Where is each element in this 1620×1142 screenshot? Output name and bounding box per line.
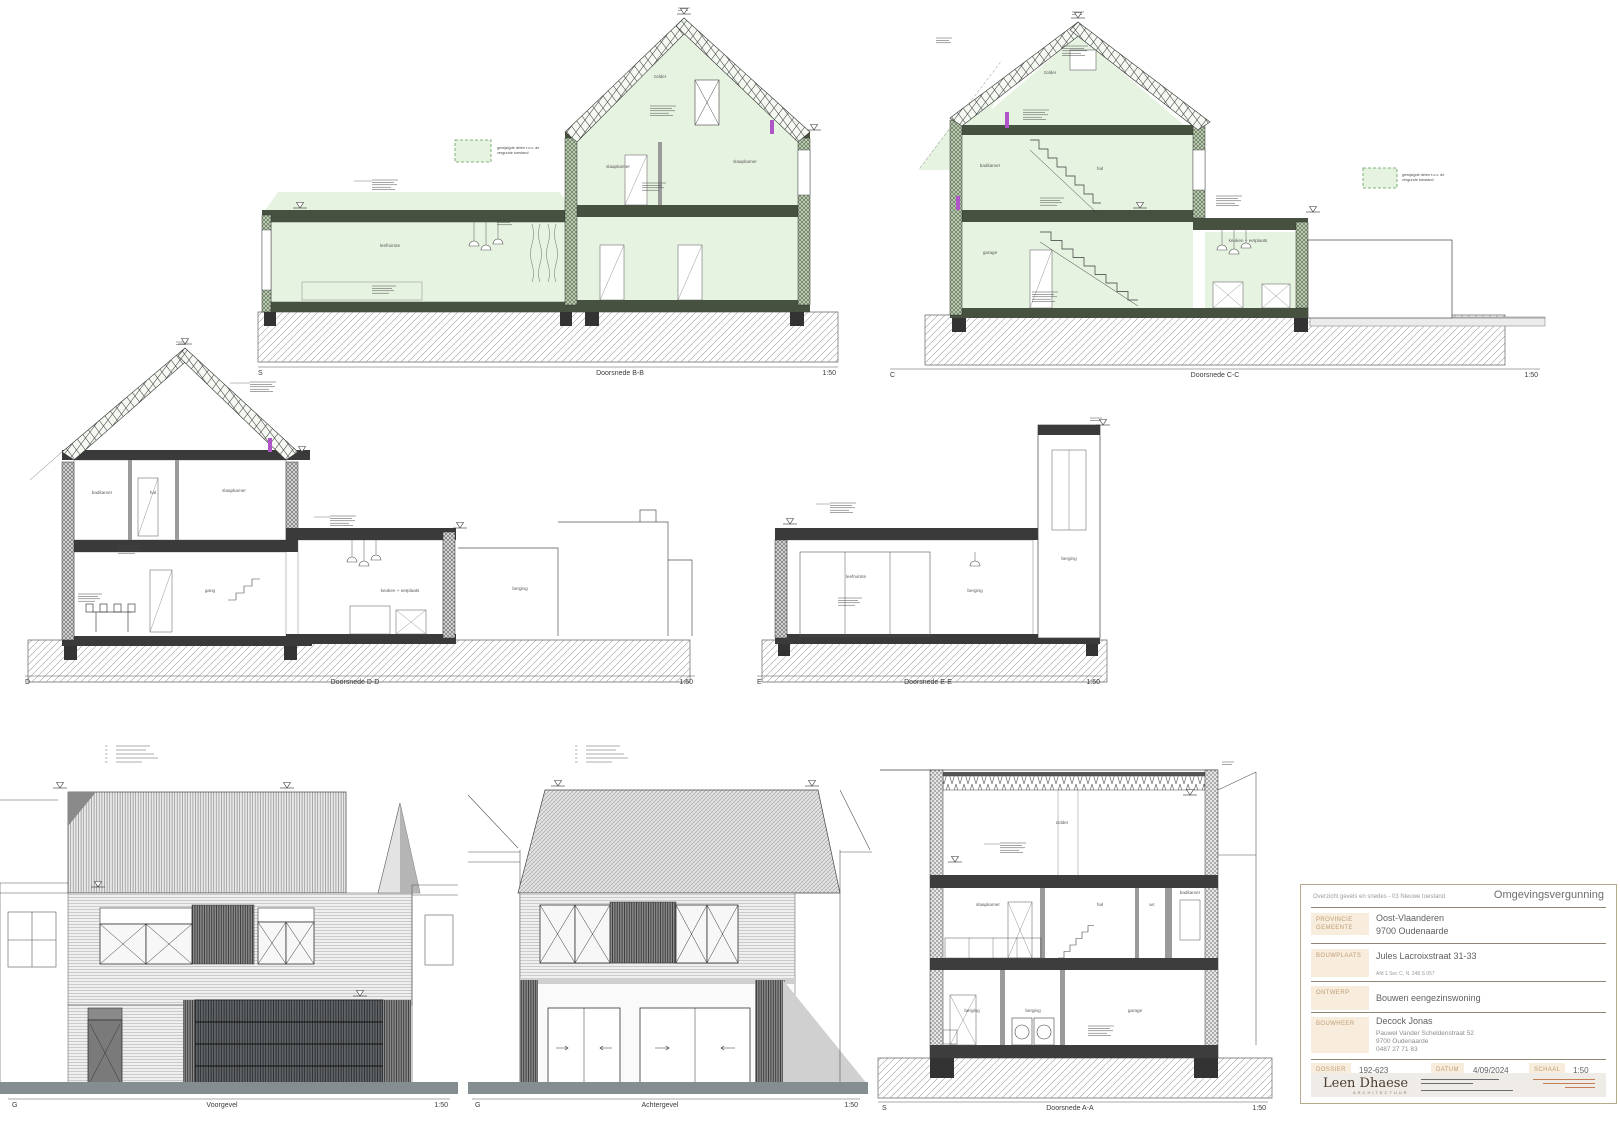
sliding-doors-2 (640, 1008, 750, 1085)
ground-hatch (762, 640, 1107, 682)
room-label: berging (512, 586, 528, 591)
legend-changed-parts: gewijzigde delen t.o.v. de vergunde toes… (1363, 168, 1444, 188)
legend-line2: vergunde toestand (1402, 178, 1433, 182)
field-label-provincie: PROVINCIE GEMEENTE (1311, 913, 1369, 935)
legend-line1: gewijzigde delen t.o.v. de (497, 146, 539, 150)
roof-truss-band (943, 776, 1205, 790)
section-marker: D (25, 679, 30, 686)
architect-logo: Leen Dhaese (1323, 1076, 1408, 1091)
drawing-scale: 1:50 (679, 679, 693, 686)
bouwheer-label: BOUWHEER (1316, 1021, 1355, 1027)
drawing-scale: 1:50 (822, 370, 836, 377)
room-label: keuken + eetplaats (1229, 238, 1268, 243)
neighbour-volumes (458, 510, 692, 636)
room-label: keuken + eetplaats (381, 588, 420, 593)
title-block: Overzicht gevels en snedes - 03 Nieuwe t… (1300, 884, 1617, 1104)
section-marker: C (890, 372, 895, 379)
material-legend (575, 746, 628, 762)
drawing-title: Doorsnede C-C (1191, 372, 1240, 379)
drawing-doorsnede-ee: leefruimte berging berging E Doorsnede E… (750, 415, 1120, 690)
room-label: slaapkamer (222, 488, 246, 493)
legend-swatch (455, 140, 491, 162)
drawing-scale: 1:50 (1086, 679, 1100, 686)
room-label: zolder (1044, 70, 1057, 75)
slat-band (610, 902, 676, 963)
drawing-voorgevel: G Voorgevel 1:50 (0, 725, 465, 1115)
vent-duct (1005, 112, 1009, 128)
room-label: zolder (1056, 820, 1069, 825)
field-label-bouwheer: BOUWHEER (1311, 1017, 1369, 1053)
room-label: slaapkamer (733, 159, 757, 164)
room-label: badkamer (1180, 890, 1201, 895)
slat-strip (183, 1000, 195, 1084)
room-label: zolder (654, 74, 667, 79)
room-label: badkamer (980, 163, 1001, 168)
architect-logo-band: Leen Dhaese ARCHITECTUUR (1311, 1073, 1606, 1097)
drawing-scale: 1:50 (844, 1102, 858, 1109)
field-label-bouwplaats: BOUWPLAATS (1311, 949, 1369, 977)
material-legend (105, 746, 158, 762)
roof (68, 792, 346, 893)
shadow (783, 980, 868, 1085)
legend-swatch (1363, 168, 1397, 188)
section-marker: S (882, 1105, 887, 1112)
drawing-title: Doorsnede A-A (1046, 1105, 1094, 1112)
bouwheer-value: Decock Jonas (1376, 1016, 1433, 1027)
drawing-title: Doorsnede E-E (904, 679, 952, 686)
drawing-doorsnede-cc: gewijzigde delen t.o.v. de vergunde toes… (880, 5, 1560, 380)
attic-space (577, 28, 798, 142)
drawing-doorsnede-dd: badkamer hal slaapkamer gang keuken + ee… (15, 330, 715, 690)
window-group-2 (258, 908, 314, 964)
room-label: berging (967, 588, 983, 593)
architect-logo-subtitle: ARCHITECTUUR (1353, 1090, 1409, 1095)
window-group-1 (540, 905, 610, 963)
room-label: gang (205, 588, 216, 593)
permit-type: Omgevingsvergunning (1494, 889, 1604, 901)
slat-band (192, 905, 254, 964)
room-label: berging (1025, 1008, 1041, 1013)
neighbour-left (468, 795, 520, 1085)
room-label: berging (1061, 556, 1077, 561)
ground-strip (468, 1082, 868, 1094)
drawing-title: Achtergevel (642, 1102, 679, 1109)
provincie-value: Oost-Vlaanderen (1376, 913, 1444, 924)
room-label: badkamer (92, 490, 113, 495)
ground-hatch (28, 640, 690, 682)
drawing-sheet: gewijzigde delen t.o.v. de vergunde toes… (0, 0, 1620, 1142)
room-label: garage (1128, 1008, 1143, 1013)
gemeente-value: 9700 Oudenaarde (1376, 926, 1449, 937)
drawing-title: Doorsnede D-D (331, 679, 380, 686)
bouwheer-adres2: 9700 Oudenaarde (1376, 1038, 1428, 1046)
bouwplaats-value: Jules Lacroixstraat 31-33 (1376, 951, 1477, 962)
legend-changed-parts: gewijzigde delen t.o.v. de vergunde toes… (455, 140, 539, 162)
bouwheer-adres1: Pauwel Vander Scheldenstraat 52 (1376, 1030, 1474, 1038)
annex (1308, 240, 1452, 318)
provincie-label: PROVINCIE (1316, 917, 1353, 923)
ontwerp-label: ONTWERP (1316, 990, 1349, 996)
document-note: Overzicht gevels en snedes - 03 Nieuwe t… (1313, 894, 1445, 900)
roof (518, 790, 840, 893)
slat-strip (520, 980, 538, 1085)
gemeente-label: GEMEENTE (1316, 925, 1353, 931)
slat-strip (383, 1000, 411, 1084)
section-wall-left (930, 770, 943, 1058)
room-label: hal (1097, 902, 1103, 907)
drawing-scale: 1:50 (1524, 372, 1538, 379)
neighbour-right (840, 790, 872, 1085)
window-group-1 (100, 908, 192, 964)
drawing-title: Voorgevel (206, 1102, 238, 1109)
room-label: hal (1097, 166, 1103, 171)
room-label: leefruimte (380, 243, 401, 248)
window-group-2 (676, 905, 738, 963)
room-label: leefruimte (846, 574, 867, 579)
ground-strip (0, 1082, 458, 1094)
section-marker: E (757, 679, 762, 686)
flat-roof-slab (262, 210, 575, 222)
room-label: wc (1149, 902, 1155, 907)
ontwerp-value: Bouwen eengezinswoning (1376, 993, 1481, 1004)
room-label: berging (964, 1008, 980, 1013)
bouwplaats-label: BOUWPLAATS (1316, 953, 1361, 959)
legend-line2: vergunde toestand (497, 151, 528, 155)
room-label: garage (983, 250, 998, 255)
drawing-achtergevel: G Achtergevel 1:50 (465, 725, 875, 1115)
neighbour-right (412, 885, 458, 1085)
room-label: slaapkamer (976, 902, 1000, 907)
slat-strip (755, 980, 785, 1085)
sliding-doors-1 (548, 1008, 620, 1085)
neighbour-left (0, 800, 68, 1085)
section-marker: G (475, 1102, 480, 1109)
kadaster-value: Afd 1 Sec C, N. 248 S 057 (1376, 971, 1435, 977)
field-label-ontwerp: ONTWERP (1311, 986, 1369, 1010)
neighbour-outline (1218, 772, 1256, 1045)
room-label: slaapkamer (606, 164, 630, 169)
drawing-scale: 1:50 (434, 1102, 448, 1109)
section-marker: G (12, 1102, 17, 1109)
vent-duct (956, 196, 960, 210)
drawing-scale: 1:50 (1252, 1105, 1266, 1112)
front-door (88, 1008, 122, 1085)
garage-door (195, 1000, 383, 1084)
vent-duct (268, 438, 272, 452)
vent-duct (770, 120, 774, 134)
room-label: hal (150, 490, 156, 495)
legend-line1: gewijzigde delen t.o.v. de (1402, 173, 1444, 177)
bouwheer-tel: 0487 27 71 83 (1376, 1046, 1418, 1054)
section-wall-right (1205, 770, 1218, 1058)
drawing-doorsnede-aa: zolder slaapkamer hal wc badkamer bergin… (875, 725, 1275, 1120)
drawing-doorsnede-bb: gewijzigde delen t.o.v. de vergunde toes… (250, 0, 865, 385)
